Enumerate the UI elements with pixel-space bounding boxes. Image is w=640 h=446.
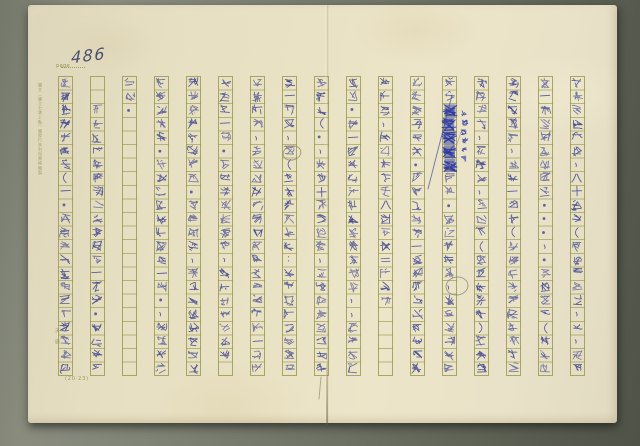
manuscript-column-6 bbox=[218, 76, 233, 376]
center-fold-crease bbox=[325, 5, 329, 423]
manuscript-column-16 bbox=[538, 76, 553, 376]
manuscript-column-1 bbox=[58, 76, 73, 376]
manuscript-column-11 bbox=[378, 76, 393, 376]
manuscript-column-15 bbox=[506, 76, 521, 376]
manuscript-column-14 bbox=[474, 76, 489, 376]
manuscript-column-3 bbox=[122, 76, 137, 376]
manuscript-column-4 bbox=[154, 76, 169, 376]
manuscript-column-10 bbox=[346, 76, 361, 376]
manuscript-column-2 bbox=[90, 76, 105, 376]
manuscript-column-5 bbox=[186, 76, 201, 376]
manuscript-column-7 bbox=[250, 76, 265, 376]
center-fold-crease-bottom bbox=[326, 363, 328, 425]
manuscript-column-8 bbox=[282, 76, 297, 376]
manuscript-column-17 bbox=[570, 76, 585, 376]
manuscript-paper: page 486 購文（國立七寶上點）國際行李利用費帳機製 天廊 (20·23) bbox=[28, 5, 617, 423]
scanned-manuscript-photo: page 486 購文（國立七寶上點）國際行李利用費帳機製 天廊 (20·23) bbox=[0, 0, 640, 446]
manuscript-grid bbox=[28, 5, 617, 423]
manuscript-column-13 bbox=[442, 76, 457, 376]
manuscript-column-12 bbox=[410, 76, 425, 376]
deletion-correction-note bbox=[459, 110, 471, 174]
